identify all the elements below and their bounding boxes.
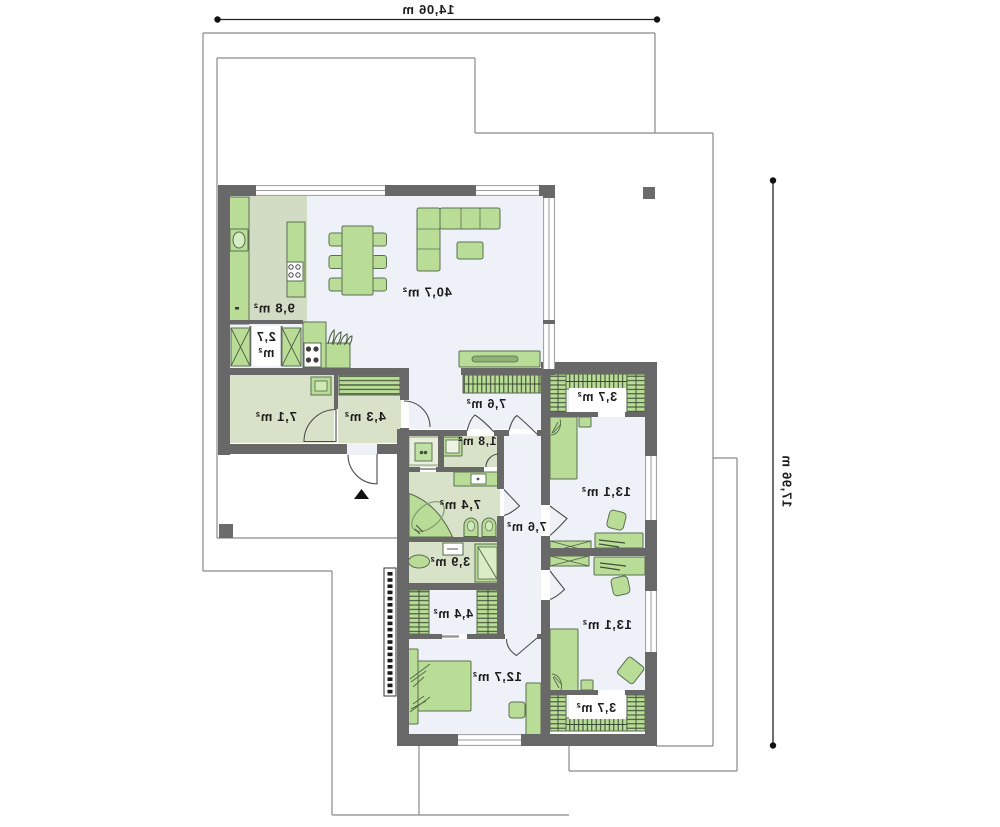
svg-text:12,7 m²: 12,7 m²	[472, 669, 522, 684]
svg-text:14,06 m: 14,06 m	[402, 2, 455, 17]
svg-text:2,7: 2,7	[256, 330, 275, 344]
svg-text:m²: m²	[258, 346, 275, 360]
svg-text:17,96 m: 17,96 m	[779, 455, 794, 508]
svg-text:3,7 m²: 3,7 m²	[577, 390, 617, 404]
svg-text:7,4 m²: 7,4 m²	[439, 497, 481, 512]
svg-text:4,4 m²: 4,4 m²	[433, 607, 473, 621]
svg-text:1,8 m²: 1,8 m²	[458, 434, 497, 448]
svg-text:7,6 m²: 7,6 m²	[506, 520, 546, 534]
svg-text:7,1 m²: 7,1 m²	[255, 409, 297, 424]
svg-text:3,7 m²: 3,7 m²	[576, 701, 616, 715]
svg-text:13,1 m²: 13,1 m²	[581, 484, 631, 499]
svg-text:9,8 m²: 9,8 m²	[253, 301, 295, 316]
svg-text:13,1 m²: 13,1 m²	[582, 617, 632, 632]
svg-text:40,7 m²: 40,7 m²	[402, 285, 452, 300]
svg-text:7,6 m²: 7,6 m²	[466, 397, 506, 411]
svg-text:3,9 m²: 3,9 m²	[430, 555, 470, 569]
svg-text:4,3 m²: 4,3 m²	[344, 409, 386, 424]
